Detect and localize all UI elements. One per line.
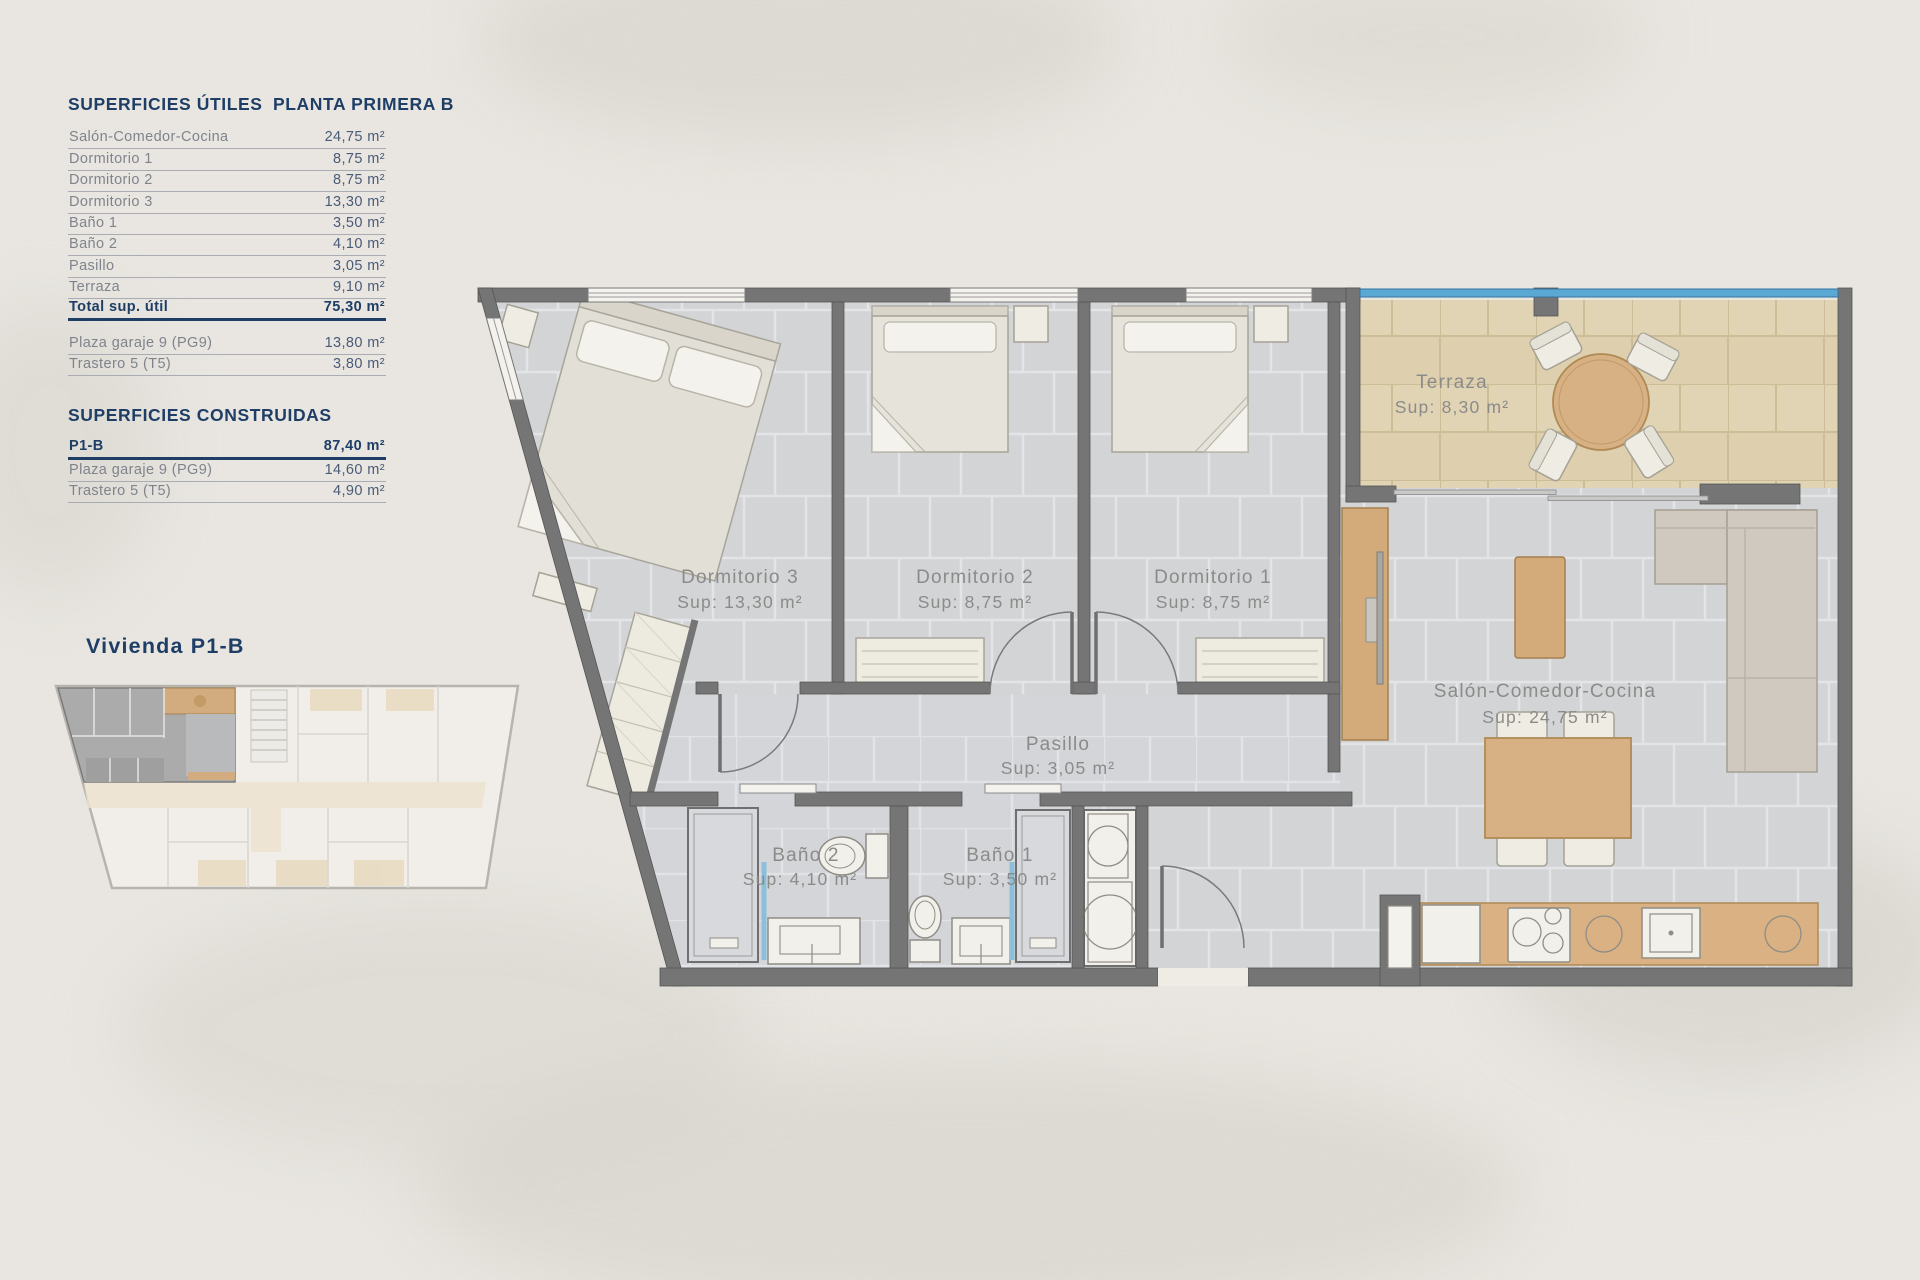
bano1-area: Sup: 3,50 m²	[943, 869, 1058, 889]
dormitorio1-bed	[1112, 306, 1248, 452]
pasillo-area: Sup: 3,05 m²	[1001, 758, 1116, 778]
washer-dryer-stack	[1083, 810, 1137, 966]
bathroom-top-wall	[1040, 792, 1352, 806]
bano1-sink	[952, 918, 1010, 964]
window-d2	[950, 288, 1078, 302]
bano2-sink	[768, 918, 860, 964]
coffee-table	[1515, 557, 1565, 658]
bathroom-top-wall	[795, 792, 962, 806]
mini-highlighted-unit	[58, 688, 235, 782]
mini-building-plan	[56, 686, 518, 888]
exterior-right-wall	[1838, 288, 1852, 986]
bano2-area: Sup: 4,10 m²	[743, 869, 858, 889]
pasillo-label: Pasillo	[1026, 734, 1090, 755]
dormitorio3-area: Sup: 13,30 m²	[677, 592, 803, 612]
dormitorio2-area: Sup: 8,75 m²	[918, 592, 1033, 612]
dormitorio3-label: Dormitorio 3	[681, 567, 799, 588]
bedroom-bottom-wall	[800, 682, 990, 694]
bano2-label: Baño 2	[772, 845, 839, 866]
exterior-bottom-wall	[1248, 968, 1852, 986]
mini-corridor	[84, 782, 486, 808]
tv-unit	[1342, 508, 1388, 740]
hall-floor	[605, 694, 1340, 806]
dormitorio1-nightstand	[1254, 306, 1288, 342]
bano1-toilet	[909, 896, 941, 962]
salon-area: Sup: 24,75 m²	[1482, 707, 1608, 727]
dormitorio2-label: Dormitorio 2	[916, 567, 1034, 588]
mini-stairs	[251, 690, 287, 762]
kitchen-sink	[1642, 908, 1700, 958]
bano1-label: Baño 1	[966, 845, 1033, 866]
dormitorio1-area: Sup: 8,75 m²	[1156, 592, 1271, 612]
terraza-label: Terraza	[1416, 372, 1488, 393]
fridge	[1422, 905, 1480, 963]
terrace-glass-railing	[1360, 289, 1838, 297]
dormitorio1-wardrobe	[1196, 638, 1324, 688]
wall-d3-d2	[832, 302, 844, 694]
plan-canvas: Dormitorio 3 Sup: 13,30 m² Dormitorio 2 …	[0, 0, 1920, 1280]
window-d3	[588, 288, 745, 302]
dormitorio1-label: Dormitorio 1	[1154, 567, 1272, 588]
entry-closet-door	[1388, 906, 1412, 968]
exterior-bottom-wall	[660, 968, 1158, 986]
salon-label: Salón-Comedor-Cocina	[1434, 681, 1657, 702]
bano1-sliding-door	[985, 784, 1061, 793]
terrace-divider-stub	[1700, 484, 1800, 504]
wall-d1-salon	[1328, 302, 1340, 772]
dormitorio2-nightstand	[1014, 306, 1048, 342]
dormitorio2-wardrobe	[856, 638, 984, 688]
bathroom-top-wall	[630, 792, 718, 806]
bano2-sliding-door	[740, 784, 816, 793]
entry-threshold	[1158, 968, 1248, 986]
cooktop	[1508, 908, 1570, 962]
main-floor-plan: Dormitorio 3 Sup: 13,30 m² Dormitorio 2 …	[478, 288, 1852, 986]
terraza-area: Sup: 8,30 m²	[1395, 397, 1510, 417]
terrace-divider-stub	[1346, 486, 1396, 502]
wall-bano-divider	[890, 806, 908, 968]
floor-plan-page: { "tables": { "utiles": { "title": "SUPE…	[0, 0, 1920, 1280]
dormitorio2-bed	[872, 306, 1008, 452]
wall-d2-d1	[1078, 302, 1090, 694]
kitchen-counter	[1420, 903, 1818, 965]
terrace-left-wall	[1346, 288, 1360, 502]
window-d1	[1186, 288, 1312, 302]
bedroom-bottom-wall	[1178, 682, 1340, 694]
